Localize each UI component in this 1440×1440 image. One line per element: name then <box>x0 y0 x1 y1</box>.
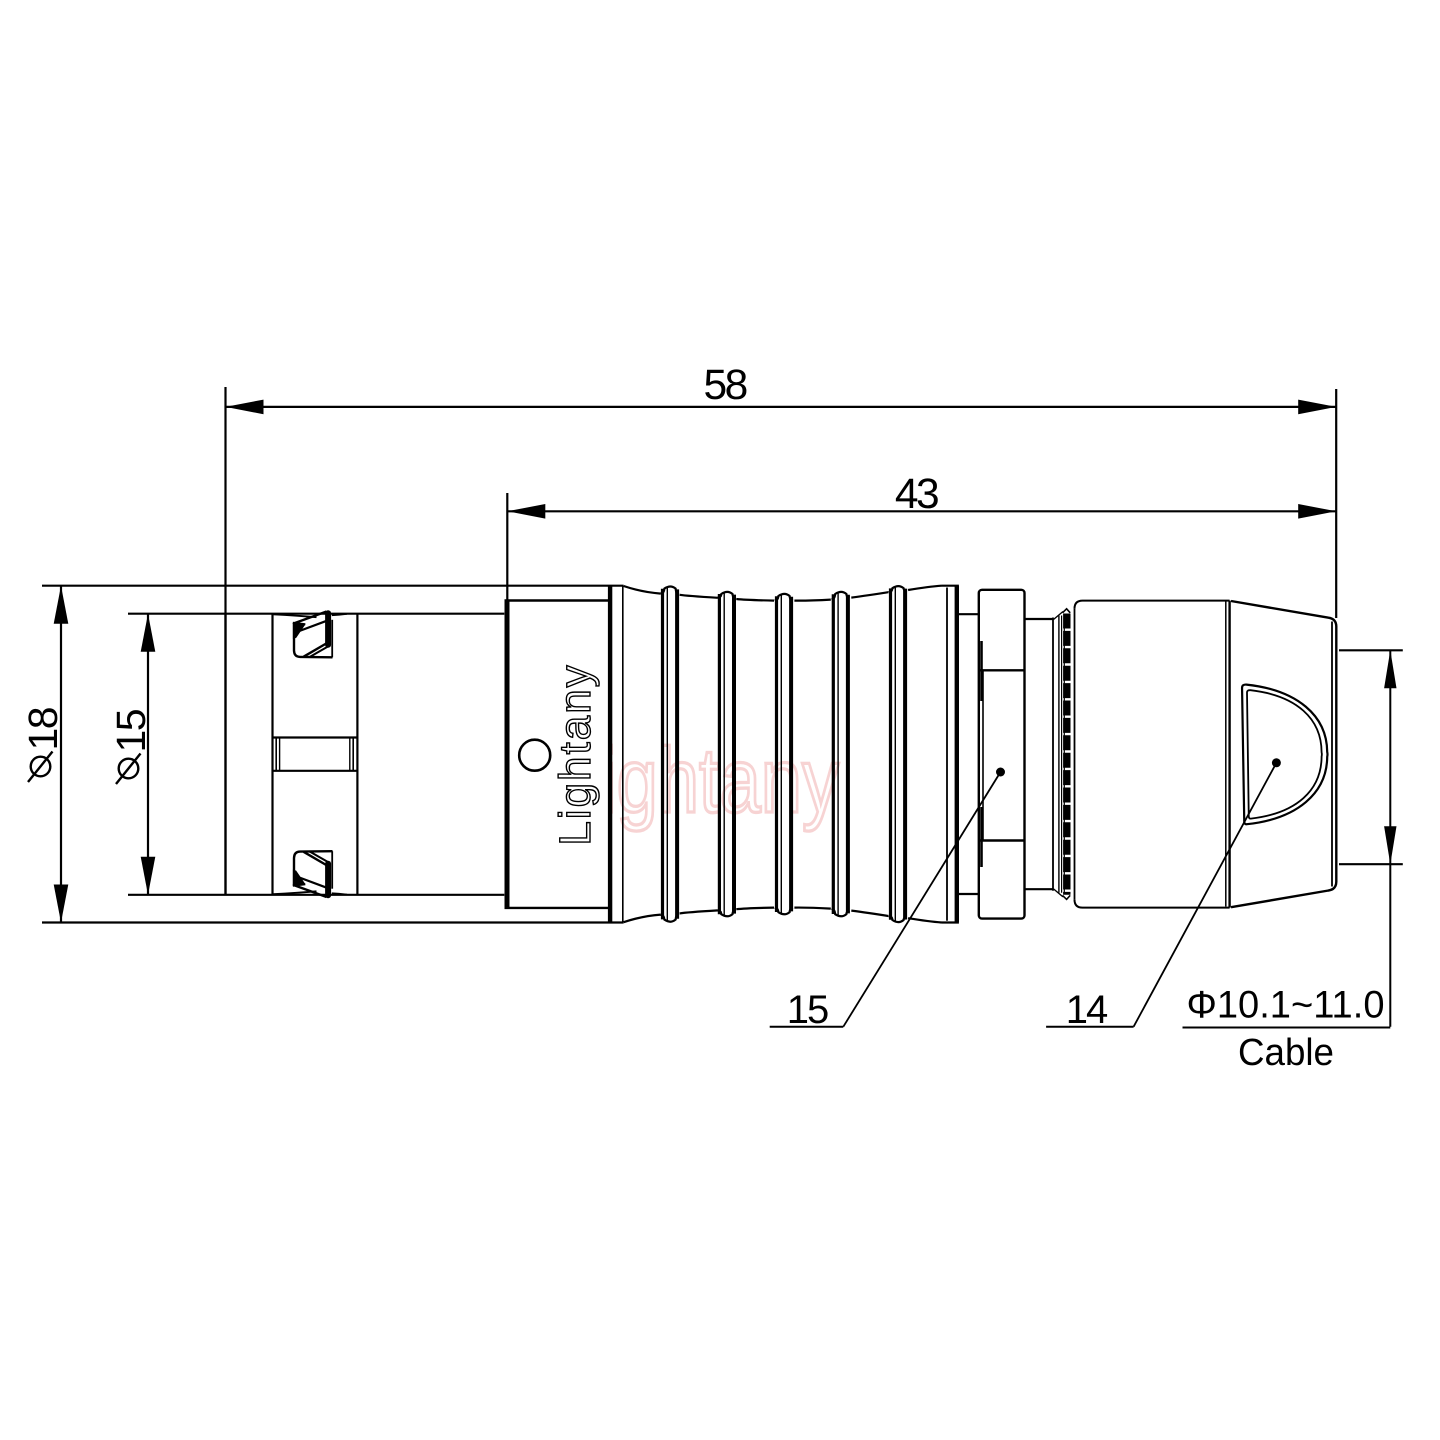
svg-text:15: 15 <box>108 709 154 752</box>
svg-text:Φ10.1~11.0: Φ10.1~11.0 <box>1187 984 1385 1027</box>
svg-text:18: 18 <box>20 707 66 750</box>
svg-text:Cable: Cable <box>1238 1032 1334 1074</box>
svg-text:15: 15 <box>787 988 828 1032</box>
svg-text:43: 43 <box>895 471 938 518</box>
svg-text:Lightany: Lightany <box>551 663 600 845</box>
svg-text:14: 14 <box>1066 988 1108 1032</box>
svg-text:58: 58 <box>704 362 747 409</box>
